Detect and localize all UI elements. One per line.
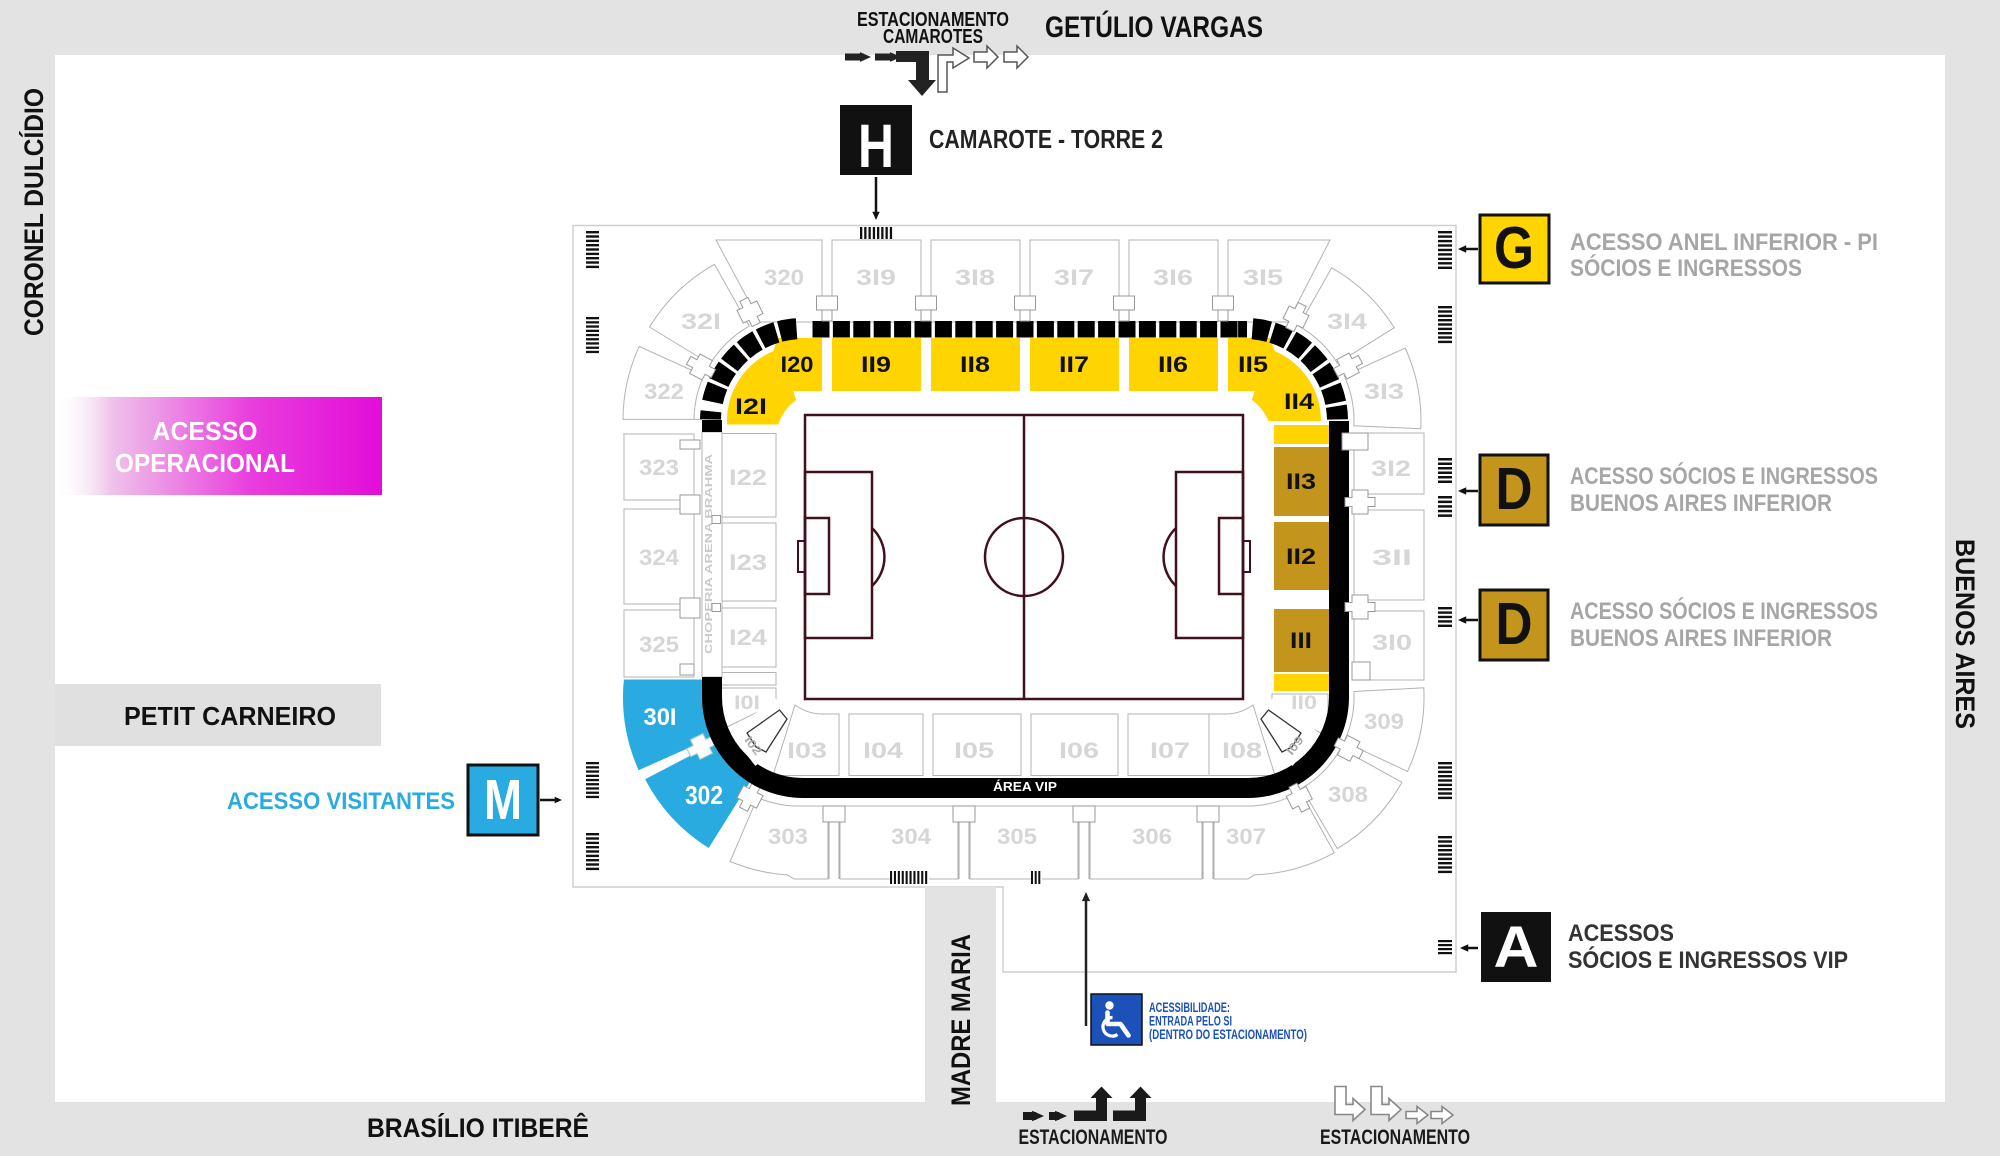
svg-text:I06: I06 — [1059, 738, 1099, 763]
svg-text:CAMAROTES: CAMAROTES — [883, 26, 983, 48]
svg-text:M: M — [484, 768, 522, 832]
svg-text:ÁREA VIP: ÁREA VIP — [993, 779, 1057, 794]
svg-text:I23: I23 — [729, 550, 767, 575]
svg-text:D: D — [1496, 456, 1533, 522]
svg-text:CAMAROTE - TORRE 2: CAMAROTE - TORRE 2 — [929, 124, 1163, 154]
svg-text:II7: II7 — [1059, 352, 1089, 377]
svg-text:3I4: 3I4 — [1327, 309, 1368, 334]
svg-text:I24: I24 — [729, 625, 768, 650]
svg-text:3I8: 3I8 — [955, 265, 995, 290]
svg-text:302: 302 — [685, 780, 723, 810]
svg-text:OPERACIONAL: OPERACIONAL — [115, 448, 295, 478]
svg-text:322: 322 — [644, 379, 684, 404]
svg-text:I05: I05 — [954, 738, 994, 763]
svg-text:SÓCIOS E INGRESSOS VIP: SÓCIOS E INGRESSOS VIP — [1568, 946, 1848, 974]
svg-text:I20: I20 — [781, 352, 814, 377]
svg-text:BUENOS AIRES INFERIOR: BUENOS AIRES INFERIOR — [1570, 490, 1832, 517]
svg-text:30I: 30I — [644, 704, 677, 731]
svg-text:ESTACIONAMENTO: ESTACIONAMENTO — [1019, 1126, 1168, 1149]
svg-text:ACESSO: ACESSO — [153, 416, 258, 446]
svg-text:II8: II8 — [960, 352, 990, 377]
svg-text:3I5: 3I5 — [1243, 265, 1283, 290]
svg-text:CORONEL DULCÍDIO: CORONEL DULCÍDIO — [18, 88, 49, 336]
svg-text:304: 304 — [891, 824, 932, 849]
svg-text:II5: II5 — [1238, 352, 1268, 377]
svg-text:307: 307 — [1226, 824, 1266, 849]
svg-text:32I: 32I — [681, 309, 721, 334]
svg-text:3I3: 3I3 — [1364, 379, 1404, 404]
svg-text:308: 308 — [1328, 782, 1368, 807]
svg-text:I08: I08 — [1222, 738, 1262, 763]
svg-text:I03: I03 — [787, 738, 827, 763]
svg-text:3I6: 3I6 — [1153, 265, 1193, 290]
svg-text:II0: II0 — [1291, 693, 1317, 714]
svg-text:I0I: I0I — [734, 693, 760, 714]
svg-text:ACESSOS: ACESSOS — [1568, 920, 1674, 947]
svg-text:325: 325 — [639, 632, 679, 657]
svg-text:(DENTRO DO ESTACIONAMENTO): (DENTRO DO ESTACIONAMENTO) — [1149, 1027, 1307, 1042]
svg-text:303: 303 — [768, 824, 808, 849]
svg-text:PETIT CARNEIRO: PETIT CARNEIRO — [124, 701, 336, 731]
svg-text:ACESSO ANEL INFERIOR - PI: ACESSO ANEL INFERIOR - PI — [1570, 229, 1878, 256]
svg-text:II6: II6 — [1158, 352, 1188, 377]
svg-text:306: 306 — [1132, 824, 1172, 849]
svg-text:ACESSO SÓCIOS E INGRESSOS: ACESSO SÓCIOS E INGRESSOS — [1570, 462, 1878, 490]
svg-text:3I2: 3I2 — [1371, 456, 1411, 481]
svg-text:BUENOS AIRES INFERIOR: BUENOS AIRES INFERIOR — [1570, 625, 1832, 652]
svg-text:I04: I04 — [863, 738, 904, 763]
svg-text:III: III — [1290, 628, 1312, 653]
svg-text:ESTACIONAMENTO: ESTACIONAMENTO — [1320, 1126, 1470, 1149]
svg-text:II4: II4 — [1284, 389, 1315, 414]
svg-text:3I9: 3I9 — [856, 265, 896, 290]
svg-text:MADRE MARIA: MADRE MARIA — [946, 934, 976, 1106]
svg-text:305: 305 — [997, 824, 1037, 849]
svg-text:D: D — [1496, 591, 1533, 657]
svg-text:3I7: 3I7 — [1054, 265, 1094, 290]
svg-text:ACESSO VISITANTES: ACESSO VISITANTES — [227, 788, 455, 815]
svg-text:CHOPERIA ARENA BRAHMA: CHOPERIA ARENA BRAHMA — [703, 453, 715, 654]
svg-text:3II: 3II — [1372, 545, 1412, 570]
svg-text:BUENOS AIRES: BUENOS AIRES — [1950, 539, 1980, 729]
svg-text:G: G — [1494, 215, 1534, 281]
svg-text:ACESSO SÓCIOS E INGRESSOS: ACESSO SÓCIOS E INGRESSOS — [1570, 597, 1878, 625]
svg-text:323: 323 — [639, 455, 679, 480]
svg-text:H: H — [858, 112, 894, 180]
svg-text:A: A — [1494, 915, 1539, 980]
svg-text:I07: I07 — [1150, 738, 1190, 763]
svg-text:II9: II9 — [861, 352, 891, 377]
svg-text:II2: II2 — [1286, 544, 1316, 569]
svg-text:I2I: I2I — [735, 394, 767, 419]
svg-text:SÓCIOS E INGRESSOS: SÓCIOS E INGRESSOS — [1570, 254, 1802, 282]
svg-text:320: 320 — [764, 265, 804, 290]
svg-text:309: 309 — [1364, 709, 1404, 734]
svg-text:3I0: 3I0 — [1372, 630, 1412, 655]
svg-text:GETÚLIO VARGAS: GETÚLIO VARGAS — [1045, 10, 1263, 44]
svg-text:II3: II3 — [1286, 469, 1316, 494]
svg-text:I22: I22 — [729, 465, 767, 490]
svg-text:BRASÍLIO ITIBERÊ: BRASÍLIO ITIBERÊ — [367, 1112, 589, 1143]
svg-text:324: 324 — [639, 545, 680, 570]
